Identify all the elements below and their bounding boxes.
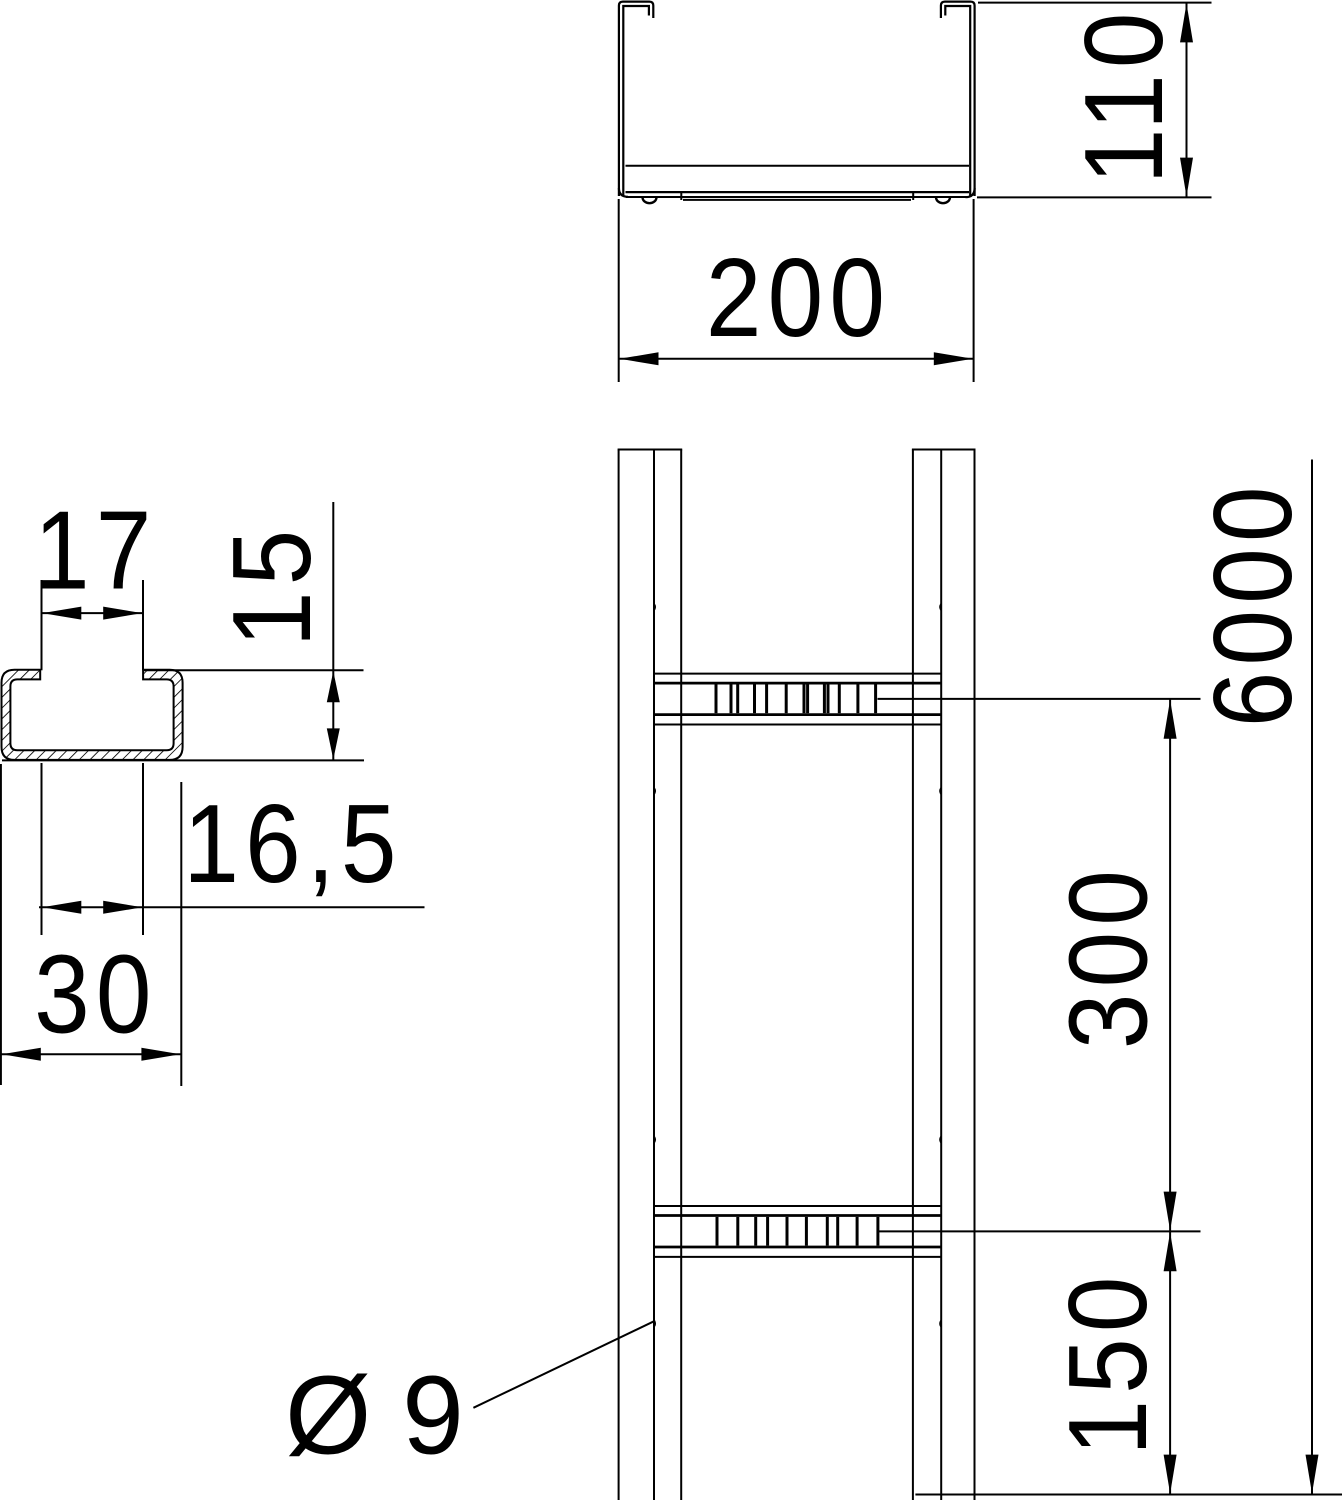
svg-text:17: 17 <box>34 489 158 613</box>
svg-text:110: 110 <box>1062 6 1186 184</box>
svg-text:15: 15 <box>210 524 334 648</box>
svg-text:200: 200 <box>706 236 891 360</box>
svg-text:30: 30 <box>34 932 158 1056</box>
svg-text:150: 150 <box>1046 1270 1170 1455</box>
svg-text:16,5: 16,5 <box>183 782 402 906</box>
svg-text:Ø 9: Ø 9 <box>285 1353 464 1477</box>
svg-text:6000: 6000 <box>1191 480 1315 727</box>
svg-text:300: 300 <box>1047 864 1171 1049</box>
